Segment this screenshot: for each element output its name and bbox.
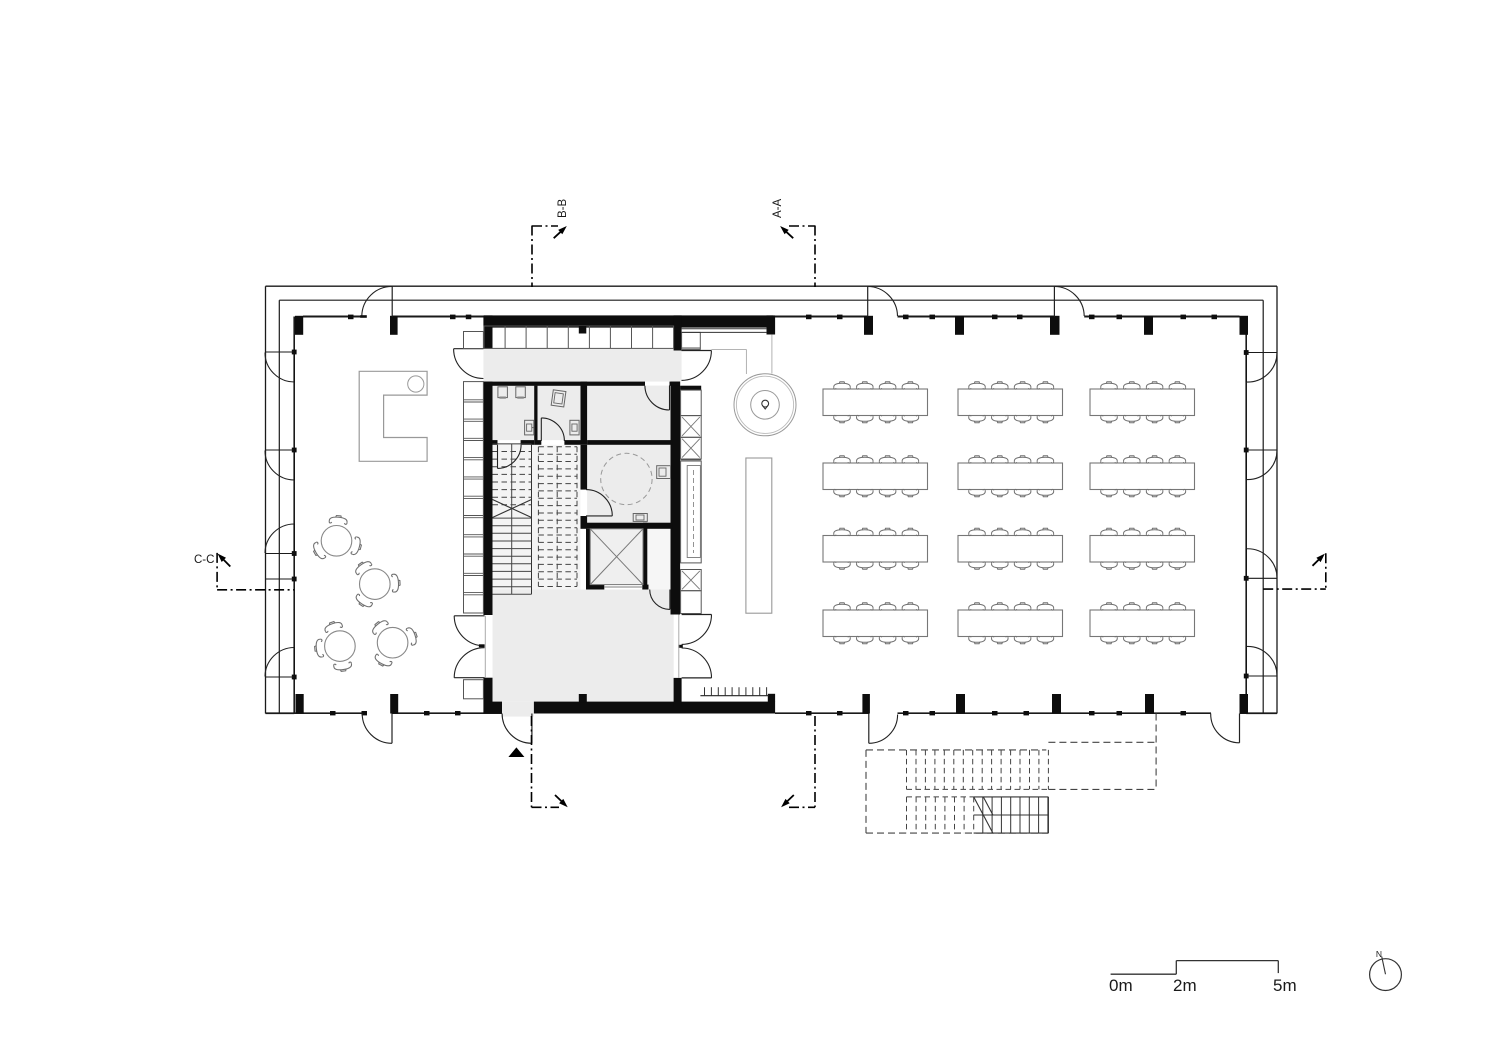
svg-text:5m: 5m bbox=[1273, 976, 1297, 995]
svg-text:N: N bbox=[1376, 949, 1382, 959]
svg-text:0m: 0m bbox=[1109, 976, 1133, 995]
svg-text:C-C: C-C bbox=[194, 554, 214, 566]
svg-text:B-B: B-B bbox=[557, 199, 569, 219]
svg-text:A-A: A-A bbox=[772, 199, 784, 219]
svg-text:2m: 2m bbox=[1173, 976, 1197, 995]
